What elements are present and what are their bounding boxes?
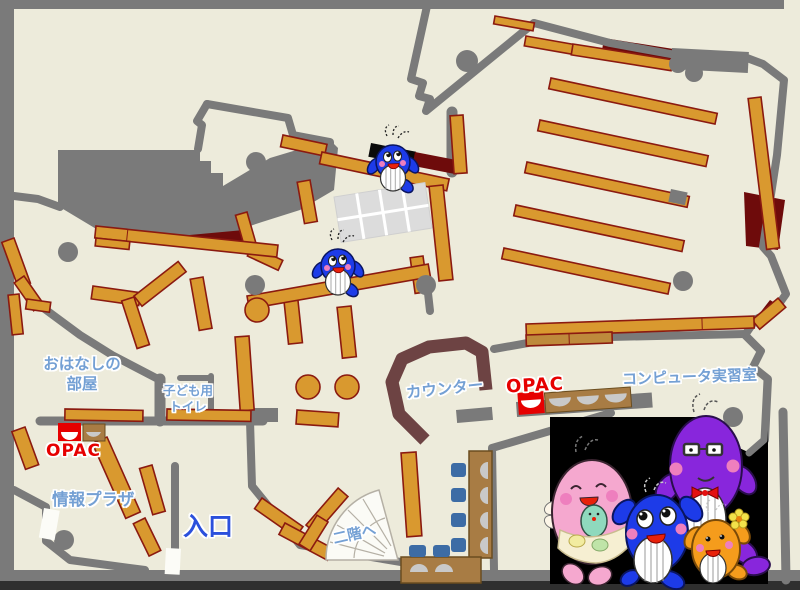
label-opac-right: OPAC [505, 372, 564, 398]
label-info-plaza: 情報プラザ [52, 489, 135, 510]
label-opac-left: OPAC [46, 441, 101, 463]
label-entrance: 入口 [183, 511, 233, 543]
library-floor-map: おはなしの 部屋 子ども用 トイレ OPAC 情報プラザ 入口 二階へ カウンタ… [0, 0, 800, 590]
label-kids-toilet: 子ども用 トイレ [158, 383, 218, 415]
label-storytime-room: おはなしの 部屋 [36, 355, 128, 395]
